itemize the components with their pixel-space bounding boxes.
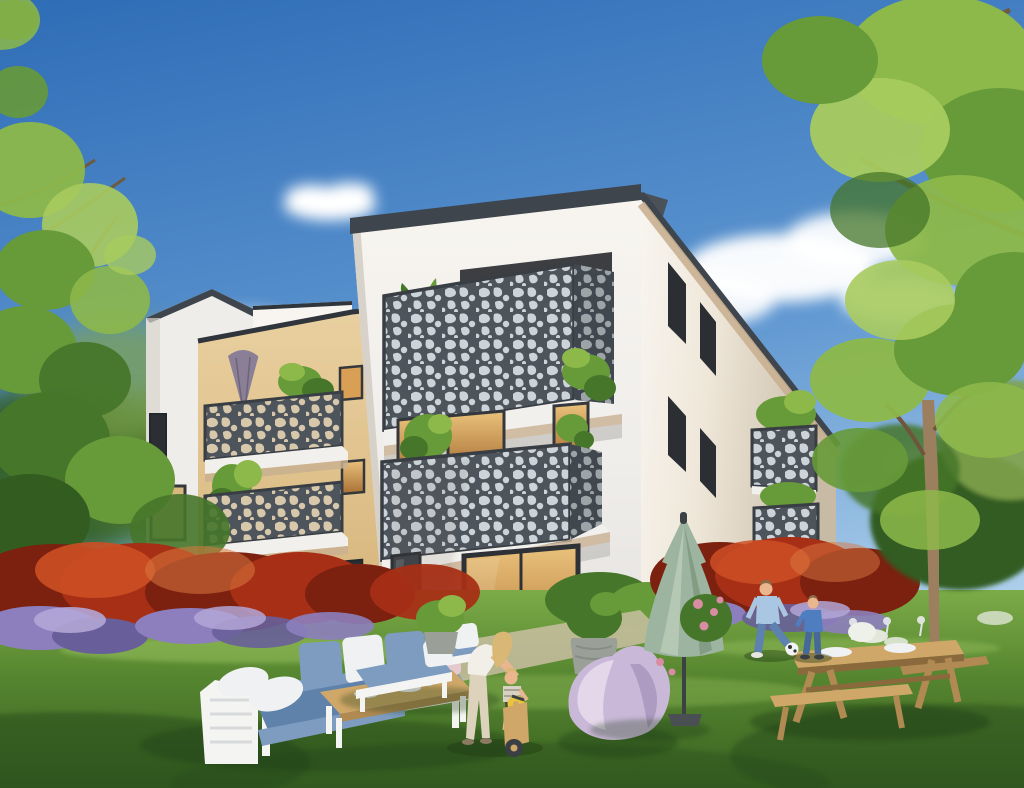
- sofa-back-cushion-1: [298, 641, 343, 690]
- picnic-bouquet: [848, 622, 876, 642]
- rendering-canvas: [0, 0, 1024, 788]
- boy-sweater: [804, 610, 823, 632]
- right-balcony-upper: [752, 390, 816, 498]
- soccer-ball: [786, 643, 799, 656]
- boy-head: [808, 598, 819, 609]
- toddler-head: [505, 672, 518, 685]
- right-balcony-upper-railing: [752, 426, 816, 490]
- cloud-left: [284, 183, 376, 220]
- garden-rendering: [0, 0, 1024, 788]
- parasol-base: [668, 714, 702, 726]
